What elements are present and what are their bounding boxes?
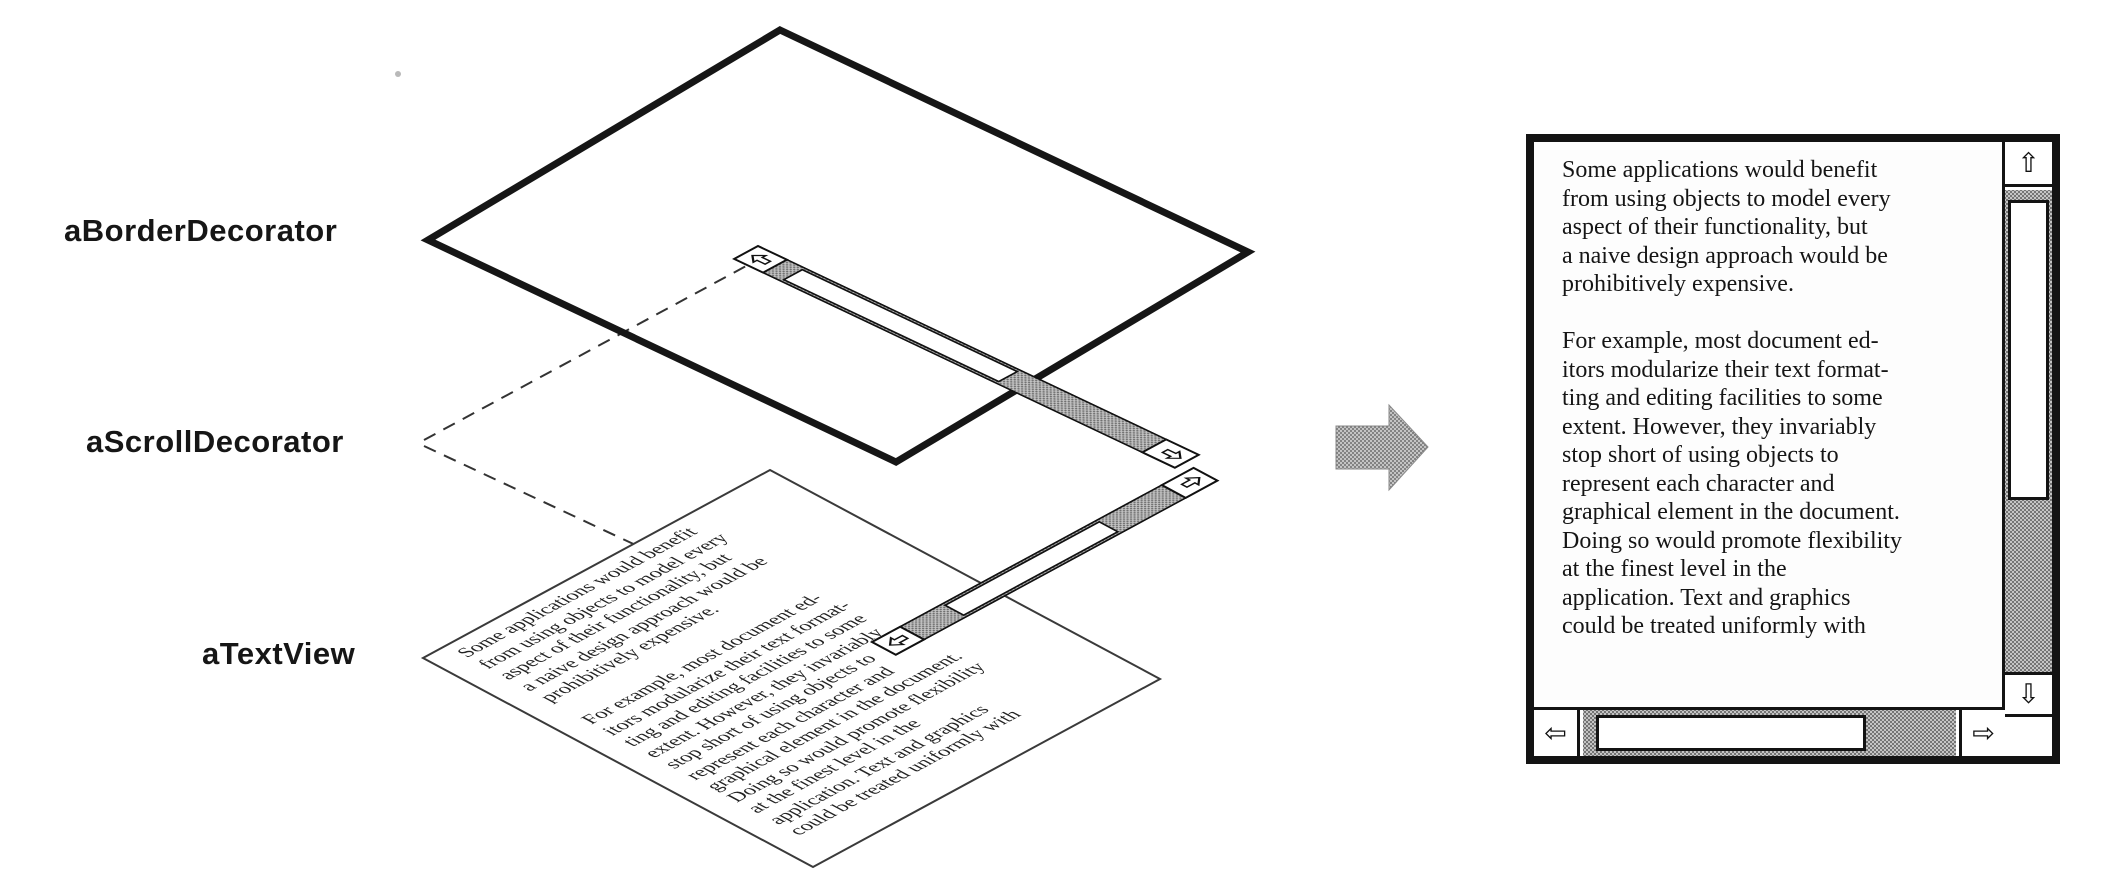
vertical-scroll-thumb[interactable] — [2008, 200, 2049, 500]
composed-window: Some applications would benefitfrom usin… — [1526, 134, 2060, 764]
text-line: a naive design approach would be — [1562, 242, 1902, 271]
text-line: application. Text and graphics — [1562, 584, 1902, 613]
text-line: graphical element in the document. — [1562, 498, 1902, 527]
text-line: For example, most document ed- — [1562, 327, 1902, 356]
horizontal-scroll-thumb[interactable] — [1596, 715, 1866, 751]
label-scroll-decorator: aScrollDecorator — [86, 424, 344, 460]
scroll-right-icon: ⇨ — [1972, 718, 1995, 749]
text-line: represent each character and — [1562, 470, 1902, 499]
scroll-decorator-horizontal-bar — [872, 468, 1217, 655]
text-line: Some applications would benefit — [1562, 156, 1902, 185]
scroll-down-button[interactable]: ⇩ — [2005, 672, 2052, 717]
label-border-decorator: aBorderDecorator — [64, 213, 337, 249]
text-line: at the finest level in the — [1562, 555, 1902, 584]
horizontal-scrollbar[interactable]: ⇦ ⇨ — [1534, 707, 2005, 756]
border-decorator-plane — [428, 30, 1248, 462]
scroll-decorator-vertical-bar — [734, 246, 1198, 468]
text-line: from using objects to model every — [1562, 185, 1902, 214]
h-bar-thumb — [945, 522, 1118, 615]
scroll-up-icon: ⇧ — [2017, 148, 2040, 179]
scroll-down-icon: ⇩ — [2017, 679, 2040, 710]
text-line: prohibitively expensive. — [1562, 270, 1902, 299]
document-text: Some applications would benefitfrom usin… — [1562, 156, 1902, 641]
vertical-scrollbar[interactable]: ⇧ ⇩ — [2002, 142, 2052, 756]
text-line — [1562, 299, 1902, 328]
label-text-view: aTextView — [202, 636, 355, 672]
text-line: stop short of using objects to — [1562, 441, 1902, 470]
scroll-left-button[interactable]: ⇦ — [1534, 710, 1580, 756]
scroll-up-button[interactable]: ⇧ — [2005, 142, 2052, 187]
v-bar-thumb — [784, 270, 1017, 382]
transition-arrow-icon — [1336, 405, 1428, 490]
text-line: aspect of their functionality, but — [1562, 213, 1902, 242]
scroll-left-icon: ⇦ — [1544, 718, 1567, 749]
scroll-right-button[interactable]: ⇨ — [1959, 710, 2005, 756]
text-line: itors modularize their text format- — [1562, 356, 1902, 385]
text-line: extent. However, they invariably — [1562, 413, 1902, 442]
text-line: could be treated uniformly with — [1562, 612, 1902, 641]
text-line: Doing so would promote flexibility — [1562, 527, 1902, 556]
text-line: ting and editing facilities to some — [1562, 384, 1902, 413]
